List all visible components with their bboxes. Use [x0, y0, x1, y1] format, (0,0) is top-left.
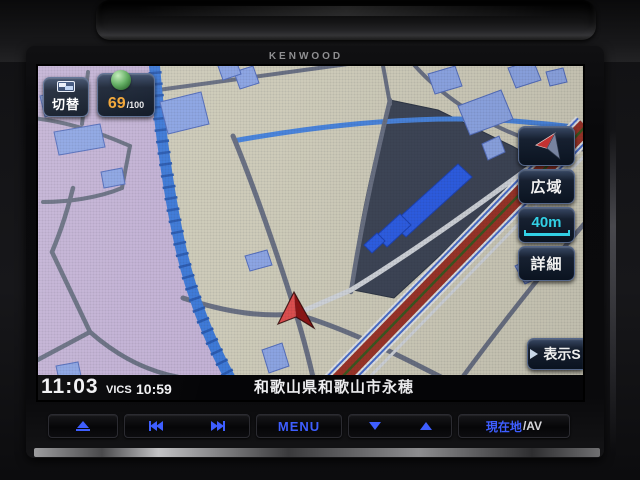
eco-score-value: 69 [108, 95, 126, 113]
eject-button[interactable] [48, 414, 118, 438]
slot-reflection [136, 6, 556, 16]
screen-switch-button[interactable]: 切替 [43, 77, 89, 117]
scale-bar-icon [524, 230, 570, 236]
nav-touchscreen[interactable]: ーナ 切替 69 /100 [38, 66, 583, 400]
eco-score-max: /100 [127, 100, 145, 110]
menu-label: MENU [278, 419, 320, 434]
volume-down-icon[interactable] [369, 422, 381, 430]
eco-globe-icon [111, 70, 131, 90]
current-location-key-label: 現在地 [486, 418, 522, 435]
next-track-icon[interactable] [211, 421, 225, 431]
car-dashboard: KENWOOD [0, 0, 640, 480]
switch-button-label: 切替 [52, 94, 80, 113]
eco-score-panel[interactable]: 69 /100 [97, 73, 155, 117]
bezel-reflection [610, 130, 616, 450]
zoom-in-button[interactable]: 詳細 [518, 246, 575, 281]
current-location-text: 和歌山県和歌山市永穂 [254, 376, 414, 397]
chrome-trim [34, 448, 600, 457]
volume-up-icon[interactable] [420, 422, 432, 430]
dash-pocket-slot [96, 0, 596, 40]
prev-track-icon[interactable] [149, 421, 163, 431]
compass-needle-icon [527, 130, 567, 162]
clock: 11:03 [41, 375, 99, 399]
zoom-out-label: 広域 [530, 176, 562, 197]
map-scale-label: 40m [531, 215, 561, 230]
zoom-out-button[interactable]: 広域 [518, 169, 575, 204]
display-s-label: 表示S [543, 344, 580, 364]
status-bar: 11:03 VICS 10:59 和歌山県和歌山市永穂 [38, 375, 583, 400]
vics-label: VICS [106, 384, 132, 396]
display-s-button[interactable]: 表示S [527, 338, 583, 370]
eject-icon-bar [76, 429, 90, 431]
eject-icon [77, 421, 89, 428]
compass-button[interactable] [518, 126, 575, 166]
map-scale-indicator: 40m [518, 207, 575, 243]
zoom-in-label: 詳細 [530, 253, 562, 274]
map-control-stack: 広域 40m 詳細 [518, 126, 575, 281]
current-location-av-button[interactable]: 現在地 /AV [458, 414, 570, 438]
menu-button[interactable]: MENU [256, 414, 342, 438]
track-buttons[interactable] [124, 414, 250, 438]
window-icon [57, 81, 75, 92]
play-arrow-icon [530, 349, 538, 359]
navigation-head-unit: KENWOOD [26, 46, 604, 458]
volume-buttons[interactable] [348, 414, 452, 438]
av-key-label: /AV [523, 419, 542, 433]
brand-logo: KENWOOD [26, 51, 586, 62]
eco-score: 69 /100 [108, 95, 144, 113]
vics-time: 10:59 [136, 381, 172, 397]
